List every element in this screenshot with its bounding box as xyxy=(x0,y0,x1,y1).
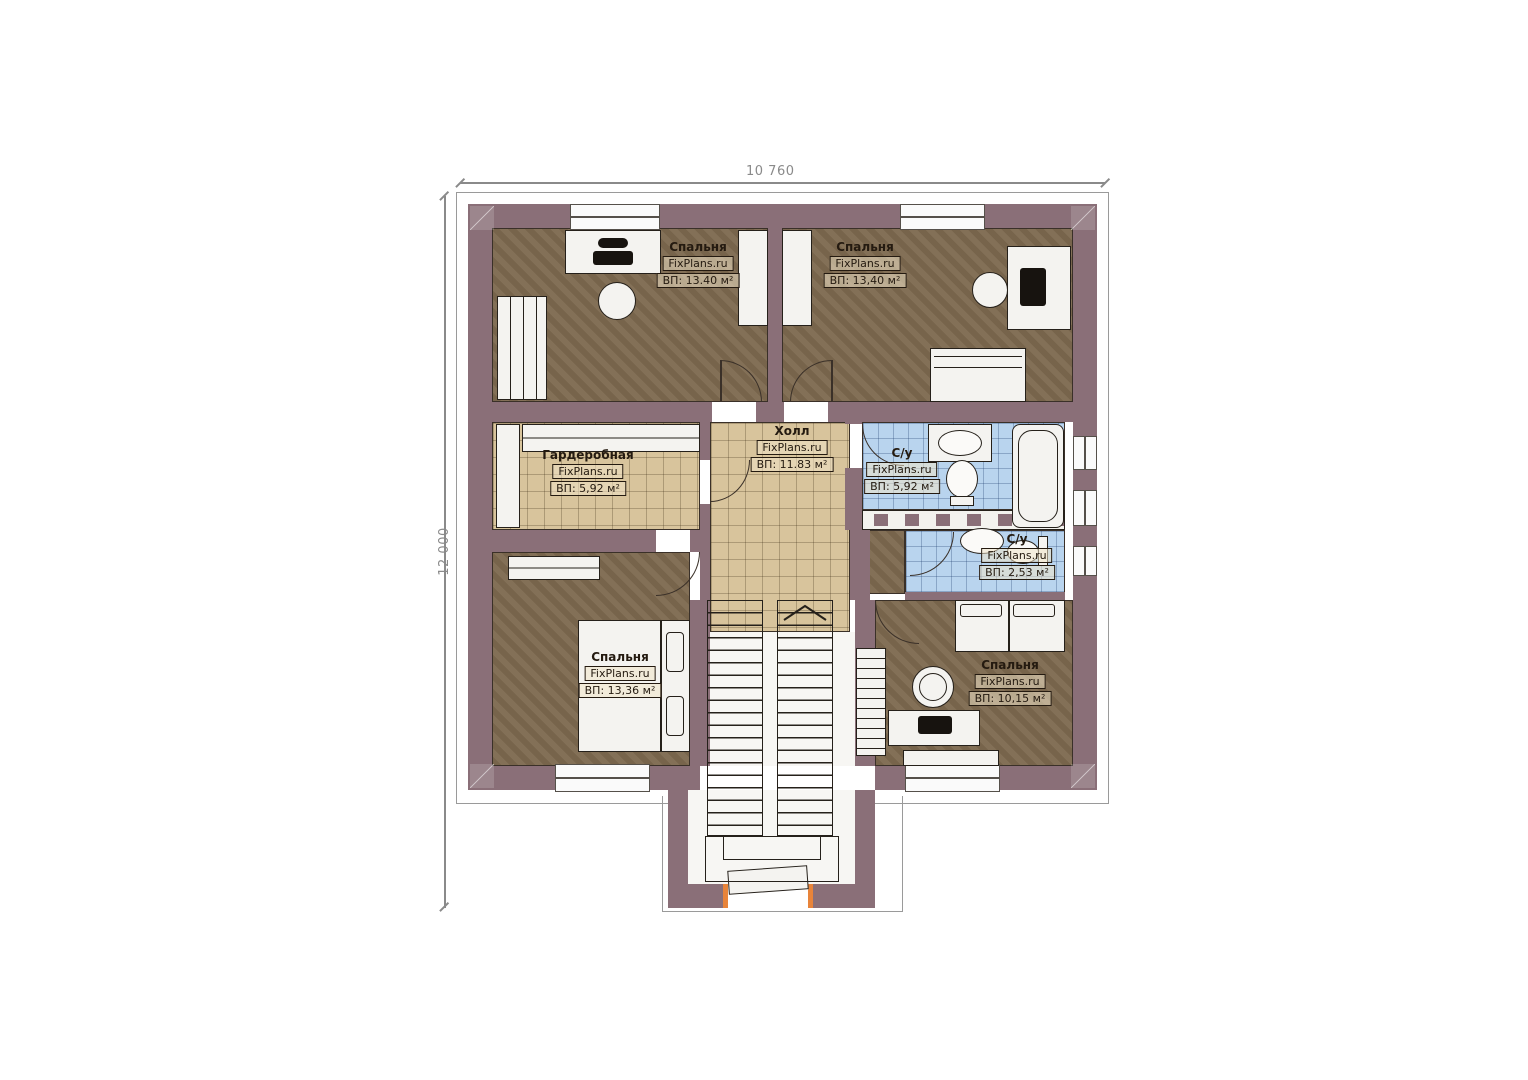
entry-jamb-left xyxy=(723,884,728,908)
wall-corner-mark xyxy=(470,206,494,230)
window-top-left xyxy=(570,204,660,230)
pillow xyxy=(666,632,684,672)
stair-flight-left xyxy=(707,600,763,836)
wall-above-bath xyxy=(862,402,1073,422)
computer-icon xyxy=(918,716,952,734)
wall-bay-right xyxy=(855,790,875,890)
window-right-3 xyxy=(1073,546,1097,576)
closet-left-of-divider xyxy=(738,230,768,326)
room-name: С/у xyxy=(864,446,940,460)
door-leaf xyxy=(831,360,833,402)
wall-corner-mark xyxy=(1071,206,1095,230)
printer-icon xyxy=(593,251,633,265)
window-bottom-right xyxy=(905,764,1000,792)
wall-center-top xyxy=(768,228,782,402)
brand-watermark: FixPlans.ru xyxy=(866,462,937,477)
brand-watermark: FixPlans.ru xyxy=(662,256,733,271)
wall-left xyxy=(468,204,492,790)
printer-icon xyxy=(598,238,628,248)
tall-wardrobe-bottom-right xyxy=(856,648,886,756)
room-name: Холл xyxy=(751,424,834,438)
window-right-1 xyxy=(1073,436,1097,470)
bed-center-line xyxy=(1008,600,1010,652)
brand-watermark: FixPlans.ru xyxy=(552,464,623,479)
wall-bay-bottom-right xyxy=(808,884,875,908)
brand-watermark: FixPlans.ru xyxy=(981,548,1052,563)
room-area: ВП: 2,53 м² xyxy=(979,565,1055,580)
room-name: Спальня xyxy=(657,240,740,254)
brand-watermark: FixPlans.ru xyxy=(756,440,827,455)
wall-corner-mark xyxy=(1071,764,1095,788)
window-right-2 xyxy=(1073,490,1097,526)
room-label-bedroom-top-right: Спальня FixPlans.ru ВП: 13,40 м² xyxy=(824,240,907,288)
wardrobe-top-left xyxy=(497,296,547,400)
wall-hall-right-lower xyxy=(850,530,870,600)
wall-bay-left xyxy=(668,790,688,890)
room-name: С/у xyxy=(979,532,1055,546)
closet-right-of-divider xyxy=(782,230,812,326)
toilet-main-base xyxy=(950,496,974,506)
room-area: ВП: 5,92 м² xyxy=(550,481,626,496)
cabinet-bottom-right xyxy=(903,750,999,766)
bathtub-inner xyxy=(1018,430,1058,522)
wall-bath-left-lower xyxy=(845,468,862,530)
wall-top xyxy=(468,204,1097,228)
room-area: ВП: 5,92 м² xyxy=(864,479,940,494)
wall-hall-left-upper xyxy=(700,422,710,460)
wall-smallbath-bottom xyxy=(905,592,1065,600)
dimension-label-height: 12 000 xyxy=(437,527,452,576)
wall-bay-bottom-left xyxy=(668,884,728,908)
room-area: ВП: 13,40 м² xyxy=(824,273,907,288)
room-name: Спальня xyxy=(969,658,1052,672)
room-area: ВП: 13.40 м² xyxy=(657,273,740,288)
plant-pot-rim xyxy=(919,673,947,701)
floor-plan: 10 760 12 000 xyxy=(460,196,1105,912)
bed-blanket-lines xyxy=(934,356,1022,368)
room-label-bathroom-main: С/у FixPlans.ru ВП: 5,92 м² xyxy=(864,446,940,494)
wall-bath-left-upper xyxy=(845,402,862,424)
entry-jamb-right xyxy=(808,884,813,908)
door-leaf xyxy=(720,360,722,402)
wardrobe-shelf-left xyxy=(496,424,520,528)
window-bottom-left xyxy=(555,764,650,792)
room-area: ВП: 10,15 м² xyxy=(969,691,1052,706)
brand-watermark: FixPlans.ru xyxy=(974,674,1045,689)
brand-watermark: FixPlans.ru xyxy=(584,666,655,681)
chair-top-left xyxy=(598,282,636,320)
stair-flight-right xyxy=(777,600,833,836)
room-label-wardrobe: Гардеробная FixPlans.ru ВП: 5,92 м² xyxy=(542,448,633,496)
sink-main xyxy=(938,430,982,456)
room-label-bedroom-bottom-right: Спальня FixPlans.ru ВП: 10,15 м² xyxy=(969,658,1052,706)
dimension-label-width: 10 760 xyxy=(746,164,795,179)
room-label-bedroom-bottom-left: Спальня FixPlans.ru ВП: 13,36 м² xyxy=(579,650,662,698)
floor-plan-canvas: 10 760 12 000 xyxy=(0,0,1528,1080)
wall-below-wardrobe-stub xyxy=(690,530,710,552)
room-area: ВП: 11.83 м² xyxy=(751,457,834,472)
wall-below-wardrobe xyxy=(492,530,656,552)
room-name: Спальня xyxy=(824,240,907,254)
chair-top-right xyxy=(972,272,1008,308)
pillow xyxy=(666,696,684,736)
room-name: Спальня xyxy=(579,650,662,664)
wall-hall-left-lower xyxy=(700,504,710,600)
pillow xyxy=(960,604,1002,617)
stair-landing-inner xyxy=(723,836,821,860)
toilet-main-bowl xyxy=(946,460,978,498)
room-area: ВП: 13,36 м² xyxy=(579,683,662,698)
dimension-line-top xyxy=(460,182,1105,184)
brand-watermark: FixPlans.ru xyxy=(829,256,900,271)
wall-mid-stub xyxy=(756,402,784,422)
computer-icon xyxy=(1020,268,1046,306)
room-label-bathroom-small: С/у FixPlans.ru ВП: 2,53 м² xyxy=(979,532,1055,580)
room-name: Гардеробная xyxy=(542,448,633,462)
room-label-hall: Холл FixPlans.ru ВП: 11.83 м² xyxy=(751,424,834,472)
room-label-bedroom-top-left: Спальня FixPlans.ru ВП: 13.40 м² xyxy=(657,240,740,288)
wardrobe-bottom-left xyxy=(508,556,600,580)
stair-direction-arrow xyxy=(782,604,828,622)
wall-mid-left xyxy=(492,402,712,422)
window-top-right xyxy=(900,204,985,230)
pillow xyxy=(1013,604,1055,617)
wall-corner-mark xyxy=(470,764,494,788)
